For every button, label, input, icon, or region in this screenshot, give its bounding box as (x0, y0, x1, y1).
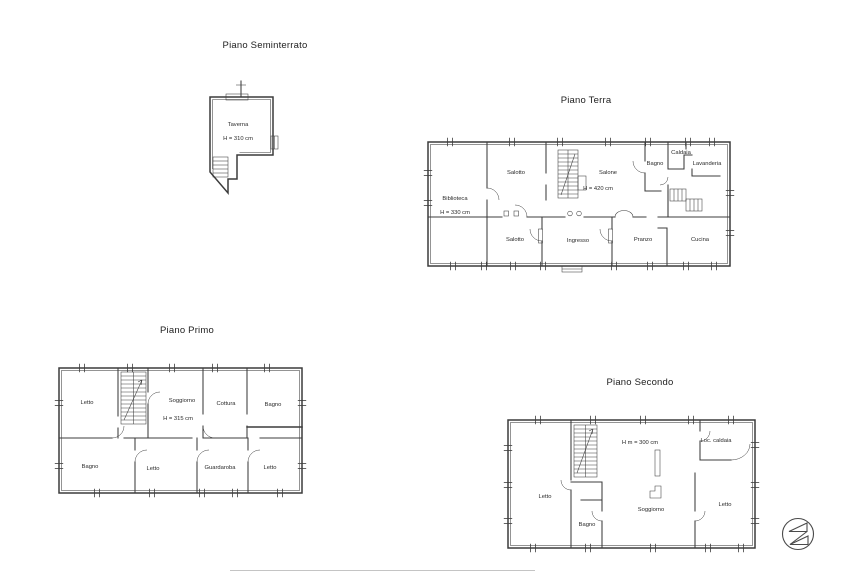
walls (428, 142, 730, 272)
title-piano-secondo: Piano Secondo (570, 377, 710, 388)
room-label-letto-se: Letto (264, 465, 277, 471)
floorplan-seminterrato: Taverna H = 310 cm (200, 78, 285, 198)
floorplan-terra: Biblioteca H = 330 cm Salotto Salone H =… (418, 133, 743, 278)
room-label-bagno-ne: Bagno (265, 402, 282, 408)
room-label-pranzo: Pranzo (634, 237, 652, 243)
room-height-soggiorno: H = 315 cm (163, 416, 193, 422)
room-label-bagno-sw: Bagno (82, 464, 99, 470)
room-label-biblioteca: Biblioteca (442, 196, 468, 202)
room-label-lavanderia: Lavanderia (693, 161, 722, 167)
room-label-letto-nw: Letto (81, 400, 94, 406)
service-stairs (670, 189, 702, 211)
room-label-salotto-nord: Salotto (507, 170, 525, 176)
room-label-ingresso: Ingresso (567, 238, 589, 244)
floorplan-sheet: Piano Seminterrato Taverna H = 310 cm Pi… (0, 0, 853, 574)
room-height-biblioteca: H = 330 cm (440, 210, 470, 216)
floorplan-secondo: Letto Bagno Soggiorno H m = 300 cm Loc. … (503, 413, 758, 553)
staircase (213, 157, 228, 177)
room-label-bagno: Bagno (579, 522, 596, 528)
room-label-cucina: Cucina (691, 237, 710, 243)
room-label-taverna: Taverna (228, 122, 249, 128)
title-piano-primo: Piano Primo (117, 325, 257, 336)
room-label-loc-caldaia: Loc. caldaia (701, 438, 733, 444)
room-height-taverna: H = 310 cm (223, 136, 253, 142)
staircase (121, 372, 146, 424)
title-piano-seminterrato: Piano Seminterrato (195, 40, 335, 51)
room-label-guardaroba: Guardaroba (205, 465, 237, 471)
room-label-caldaia: Caldaia (671, 150, 691, 156)
room-label-salotto-sud: Salotto (506, 237, 524, 243)
walls (59, 368, 302, 493)
scan-artifact-line (230, 570, 535, 571)
window-ticks (55, 364, 306, 497)
room-label-soggiorno: Soggiorno (638, 507, 664, 513)
room-label-bagno: Bagno (647, 161, 664, 167)
title-piano-terra: Piano Terra (516, 95, 656, 106)
window-ticks (504, 416, 759, 552)
room-label-letto-e: Letto (719, 502, 732, 508)
room-label-soggiorno: Soggiorno (169, 398, 195, 404)
staircase (558, 150, 586, 198)
room-label-cottura: Cottura (216, 401, 236, 407)
room-label-salone: Salone (599, 170, 617, 176)
window-ticks (424, 138, 734, 270)
room-height-soggiorno: H m = 300 cm (622, 440, 658, 446)
compass-arrows-logo-icon (779, 515, 817, 553)
room-height-salone: H = 420 cm (583, 186, 613, 192)
staircase (574, 425, 597, 477)
room-label-letto-s: Letto (147, 466, 160, 472)
room-label-letto-w: Letto (539, 494, 552, 500)
floorplan-primo: Letto Soggiorno H = 315 cm Cottura Bagno… (52, 358, 312, 508)
